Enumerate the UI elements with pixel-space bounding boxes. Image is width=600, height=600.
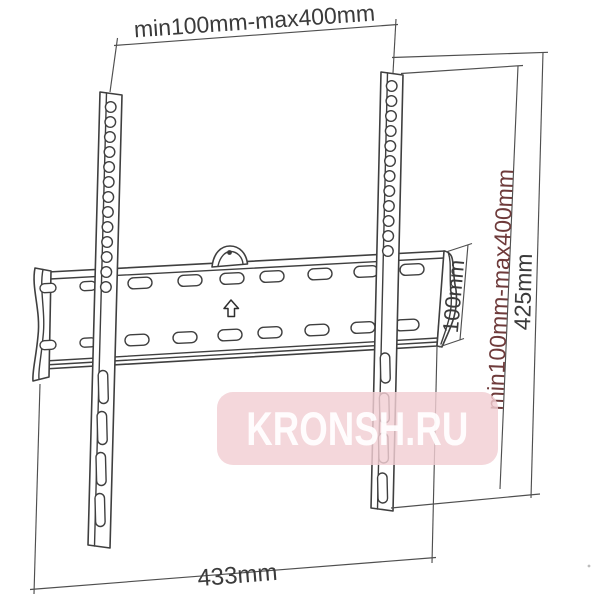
dim-label-plate-width: 433mm bbox=[196, 559, 278, 592]
dim-label-plate-height: 100mm bbox=[438, 259, 469, 334]
dim-label-rail-height: 425mm bbox=[509, 253, 537, 330]
watermark-band: KRONSH.RU bbox=[217, 392, 498, 465]
dim-label-vesa-width: min100mm-max400mm bbox=[133, 0, 376, 42]
dimension-vesa-width: min100mm-max400mm bbox=[110, 0, 398, 92]
watermark-text: KRONSH.RU bbox=[246, 405, 468, 452]
wall-mount-technical-drawing: min100mm-max400mm 433mm 100mm min100mm-m… bbox=[0, 0, 600, 600]
hanging-tab bbox=[212, 246, 248, 267]
tab-hole-icon bbox=[227, 250, 232, 255]
screenshot-root: min100mm-max400mm 433mm 100mm min100mm-m… bbox=[0, 0, 600, 600]
speck bbox=[588, 565, 591, 568]
